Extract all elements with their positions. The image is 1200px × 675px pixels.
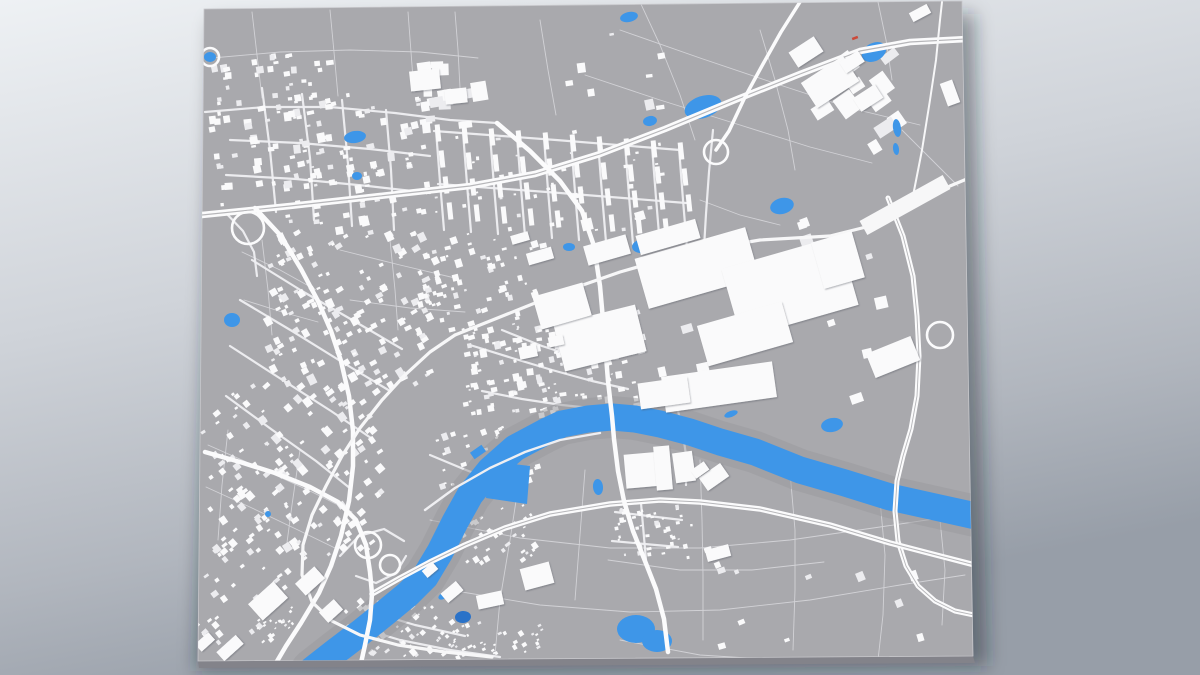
viewport [0,0,1200,675]
building-hall [409,68,441,91]
pond [563,243,575,251]
pond [204,52,216,62]
pond [265,511,271,517]
building-hall [672,451,696,483]
pond [352,172,362,180]
city-map-3d-render[interactable] [0,0,1200,675]
building-hall [444,87,467,104]
pond [224,313,240,327]
